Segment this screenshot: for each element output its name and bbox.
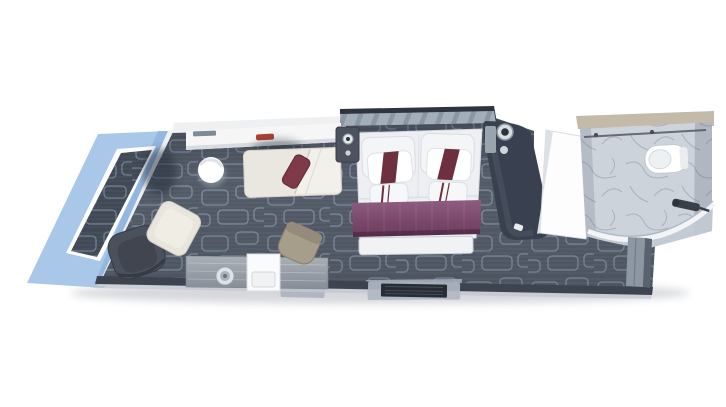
bathroom bbox=[580, 122, 714, 249]
ice-bucket bbox=[216, 267, 234, 285]
tablet bbox=[193, 131, 216, 137]
toilet bbox=[644, 144, 688, 174]
headboard-wall bbox=[340, 106, 497, 126]
nightstand-left bbox=[336, 127, 359, 162]
hall-closet bbox=[626, 237, 652, 288]
bed-runner bbox=[352, 200, 481, 237]
entry-mat bbox=[368, 281, 460, 300]
stateroom-floorplan bbox=[0, 0, 726, 407]
accent-pillow-left bbox=[367, 150, 414, 185]
minibar-cabinet bbox=[247, 254, 280, 291]
chaise-lounge bbox=[243, 147, 342, 197]
floorplan-canvas bbox=[0, 0, 726, 407]
double-bed bbox=[352, 129, 482, 255]
foot-bench bbox=[359, 236, 473, 255]
shadow-lamp bbox=[143, 149, 177, 195]
accent-pillow-right bbox=[426, 148, 472, 181]
